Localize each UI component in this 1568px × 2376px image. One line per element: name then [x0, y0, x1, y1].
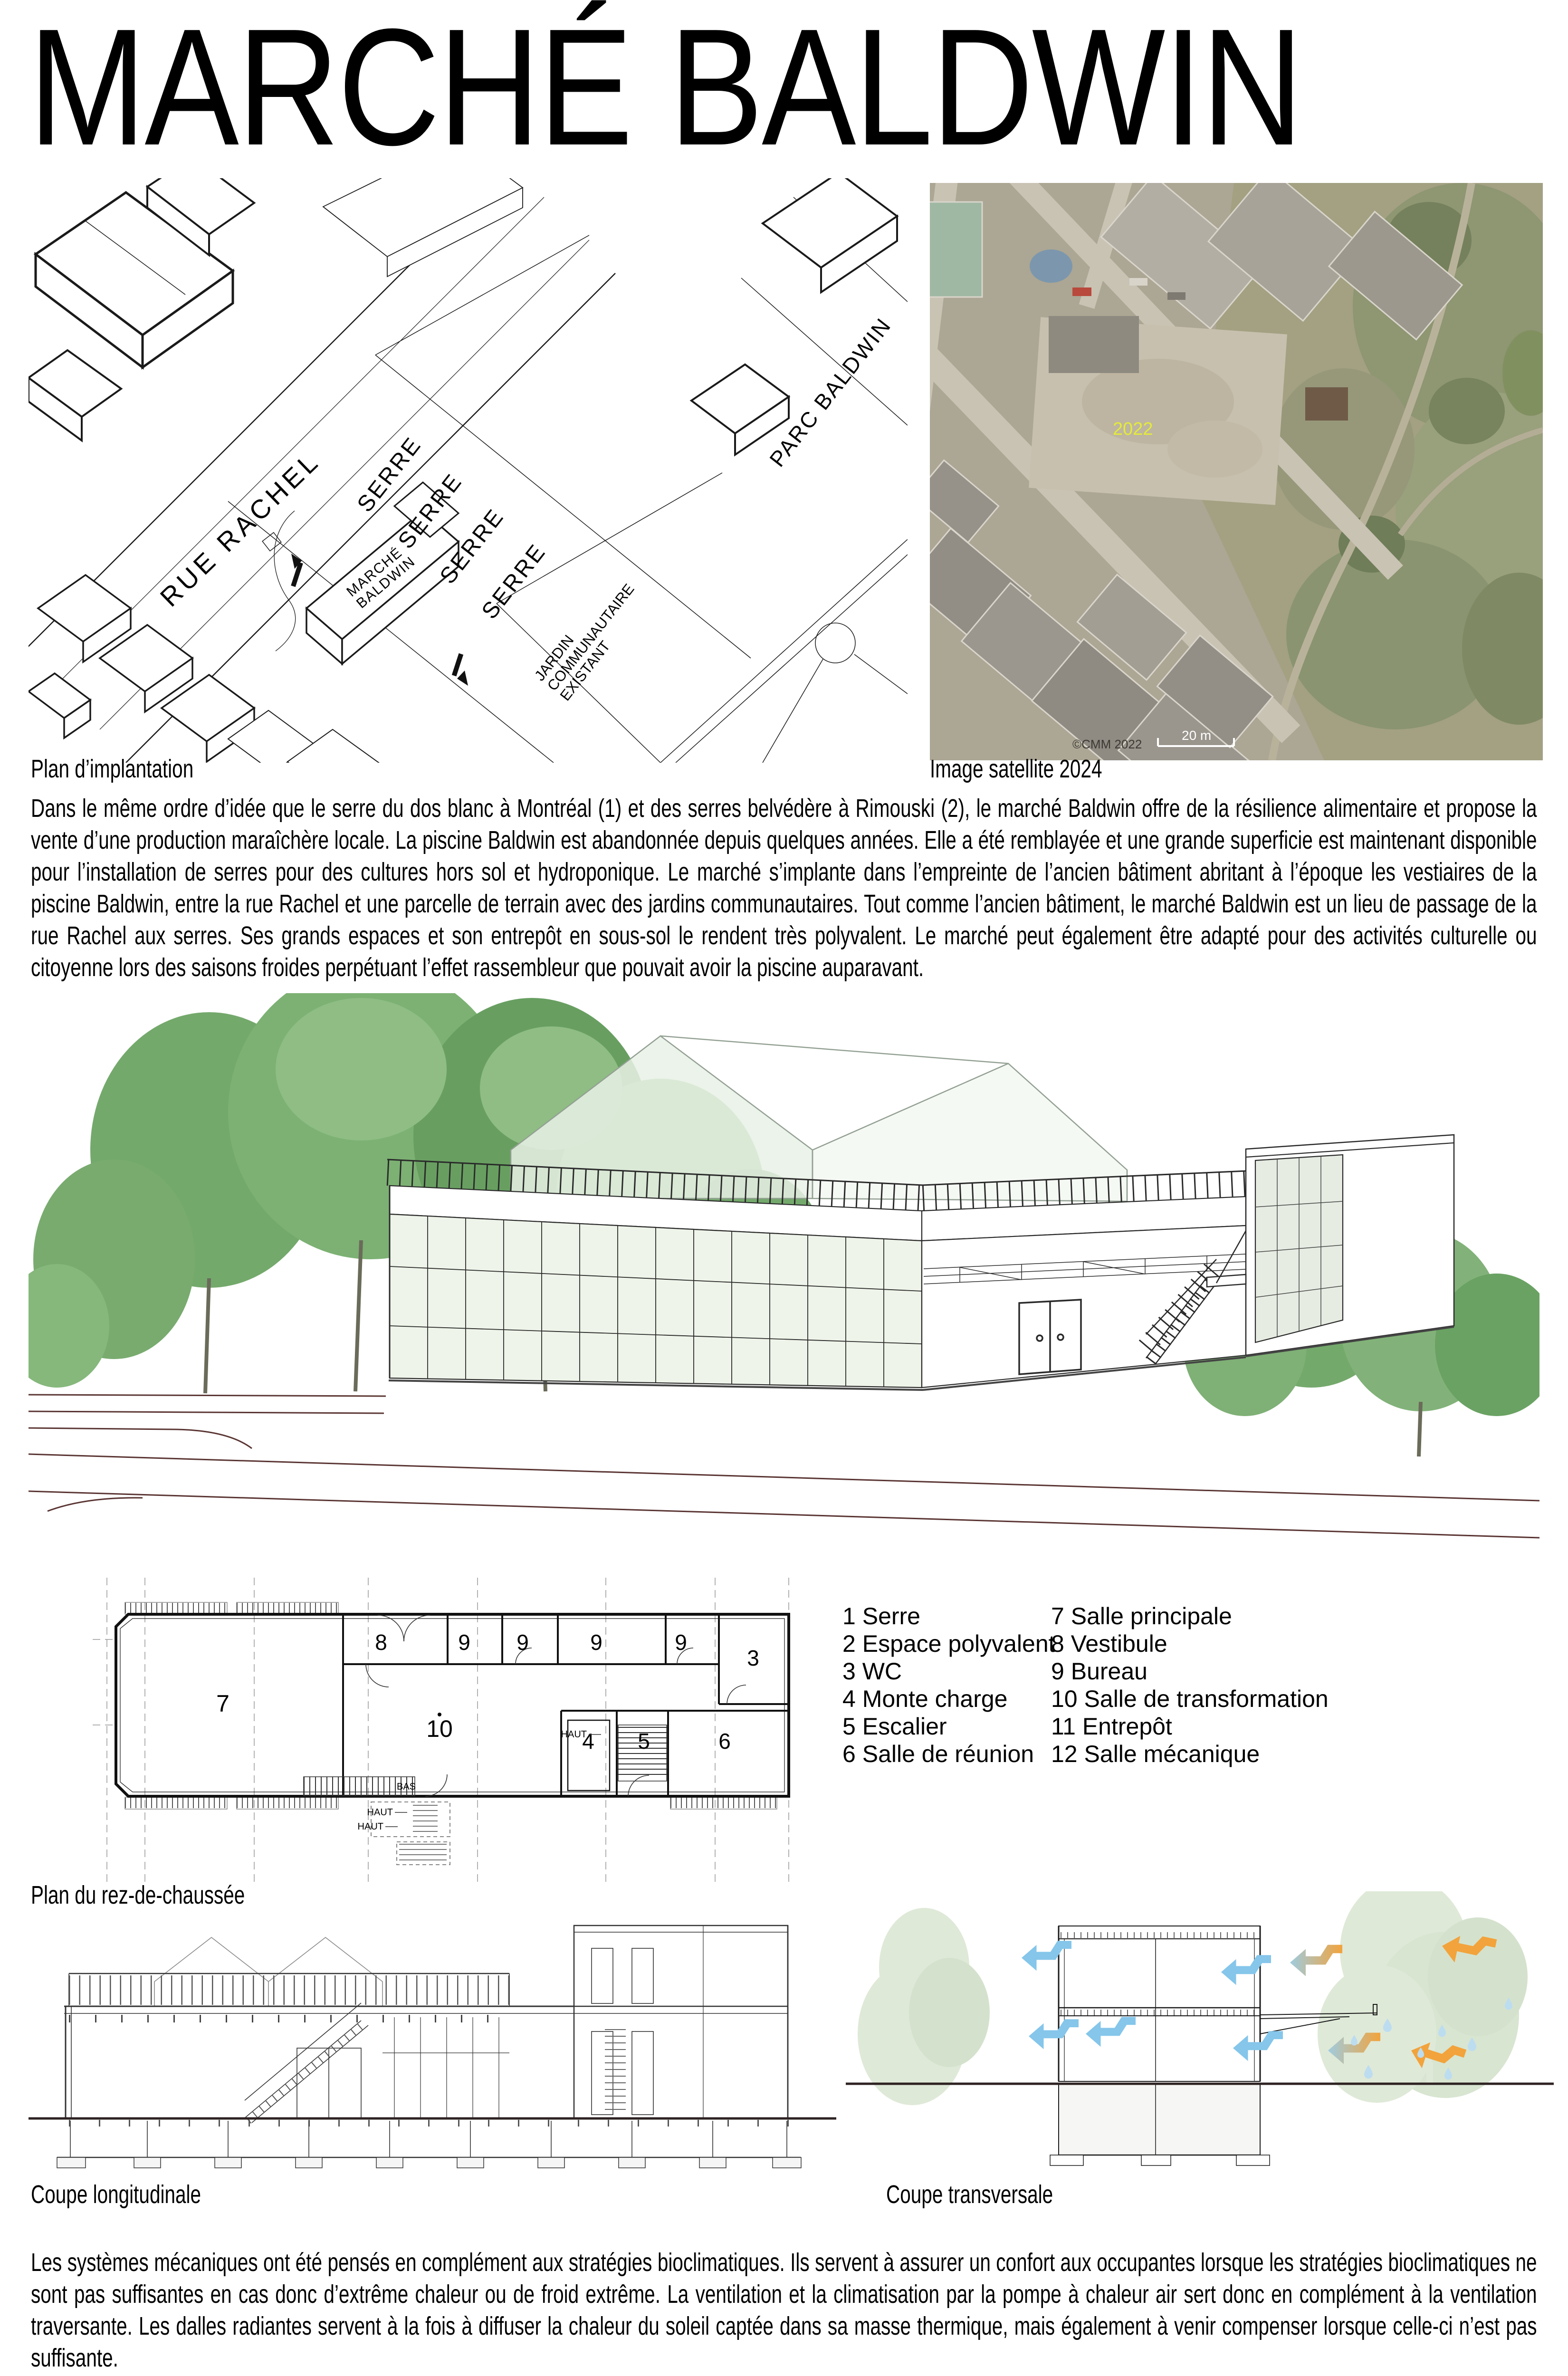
svg-text:9: 9	[590, 1630, 602, 1655]
roof-railing	[69, 1974, 509, 2006]
svg-text:9: 9	[675, 1630, 687, 1655]
legend-item: 8 Vestibule	[1051, 1630, 1329, 1657]
caption-floor-plan: Plan du rez-de-chaussée	[31, 1881, 245, 1909]
legend-column-2: 7 Salle principale 8 Vestibule 9 Bureau …	[1051, 1602, 1329, 1768]
svg-text:10: 10	[426, 1715, 453, 1742]
legend-item: 5 Escalier	[842, 1713, 1055, 1740]
caption-satellite: Image satellite 2024	[930, 755, 1102, 783]
footings	[57, 2157, 801, 2168]
basement	[57, 2121, 801, 2168]
svg-text:9: 9	[516, 1630, 529, 1655]
caption-site-plan: Plan d’implantation	[31, 755, 193, 783]
svg-text:5: 5	[638, 1729, 650, 1753]
mechanical-paragraph: Les systèmes mécaniques ont été pensés e…	[31, 2247, 1537, 2374]
satellite-image: 2022 ©CMM 2022 20 m	[930, 183, 1543, 760]
building-block-upper-left	[29, 178, 254, 441]
section-longitudinal	[29, 1910, 855, 2176]
entrance-door	[1019, 1300, 1081, 1374]
legend-item: 1 Serre	[842, 1602, 1055, 1630]
site-plan-drawing: RUE RACHEL MARCHÉ BALDWIN SERRE SERRE SE…	[29, 178, 908, 763]
svg-text:6: 6	[718, 1729, 731, 1753]
building-block-upper-right	[691, 178, 897, 455]
legend-item: 2 Espace polyvalent	[842, 1630, 1055, 1657]
right-block	[574, 1926, 788, 2118]
intro-paragraph: Dans le même ordre d’idée que le serre d…	[31, 793, 1537, 984]
svg-text:HAUT: HAUT	[561, 1729, 587, 1740]
door-swings	[366, 1615, 746, 1796]
interior-stair	[245, 2003, 368, 2123]
svg-text:3: 3	[747, 1646, 759, 1670]
basement	[1050, 2084, 1270, 2165]
legend-item: 10 Salle de transformation	[1051, 1685, 1329, 1713]
label-serre-4: SERRE	[477, 539, 551, 624]
building-slab-mid	[323, 178, 523, 277]
room-numbers: 8 9 9 9 9 3 7 10 4 5 6	[216, 1630, 759, 1753]
satellite-credit: ©CMM 2022	[1072, 737, 1142, 751]
svg-text:BAS: BAS	[397, 1782, 416, 1792]
svg-text:7: 7	[216, 1690, 229, 1717]
two-storey-block	[1246, 1135, 1454, 1355]
satellite-watermark: 2022	[1113, 419, 1153, 439]
ground-lines	[29, 1395, 1539, 1538]
caption-section-long: Coupe longitudinale	[31, 2180, 201, 2209]
main-hall	[66, 2003, 509, 2123]
legend-item: 7 Salle principale	[1051, 1602, 1329, 1630]
floor-plan-drawing: 8 9 9 9 9 3 7 10 4 5 6 HAUT BAS HAUT HAU…	[93, 1578, 805, 1891]
legend-item: 3 WC	[842, 1657, 1055, 1685]
park-paths	[660, 197, 908, 763]
svg-text:8: 8	[375, 1630, 387, 1655]
label-parc-baldwin: PARC BALDWIN	[765, 313, 896, 471]
page-title: MARCHÉ BALDWIN	[29, 0, 1302, 175]
legend-item: 6 Salle de réunion	[842, 1740, 1055, 1768]
parcel-lines	[228, 235, 751, 763]
svg-text:9: 9	[458, 1630, 470, 1655]
site-contour	[274, 511, 296, 651]
stair-core	[304, 1725, 667, 1796]
section-transversal	[846, 1891, 1558, 2176]
greenhouse-outline	[154, 1937, 382, 2006]
svg-text:HAUT: HAUT	[367, 1807, 393, 1818]
perspective-rendering	[29, 993, 1539, 1540]
legend-column-1: 1 Serre 2 Espace polyvalent 3 WC 4 Monte…	[842, 1602, 1055, 1768]
legend-item: 9 Bureau	[1051, 1657, 1329, 1685]
svg-text:HAUT: HAUT	[358, 1821, 383, 1832]
legend-item: 11 Entrepôt	[1051, 1713, 1329, 1740]
legend-item: 4 Monte charge	[842, 1685, 1055, 1713]
label-jardin-communautaire: JARDIN COMMUNAUTAIRE EXISTANT	[531, 571, 650, 704]
stair-labels: HAUT BAS HAUT HAUT	[358, 1729, 601, 1832]
legend-item: 12 Salle mécanique	[1051, 1740, 1329, 1768]
interior-walls	[343, 1614, 789, 1796]
poster-marche-baldwin: { "title": "MARCHÉ BALDWIN", "captions":…	[0, 0, 1568, 2376]
svg-text:20 m: 20 m	[1182, 728, 1211, 743]
caption-section-trans: Coupe transversale	[886, 2180, 1053, 2209]
